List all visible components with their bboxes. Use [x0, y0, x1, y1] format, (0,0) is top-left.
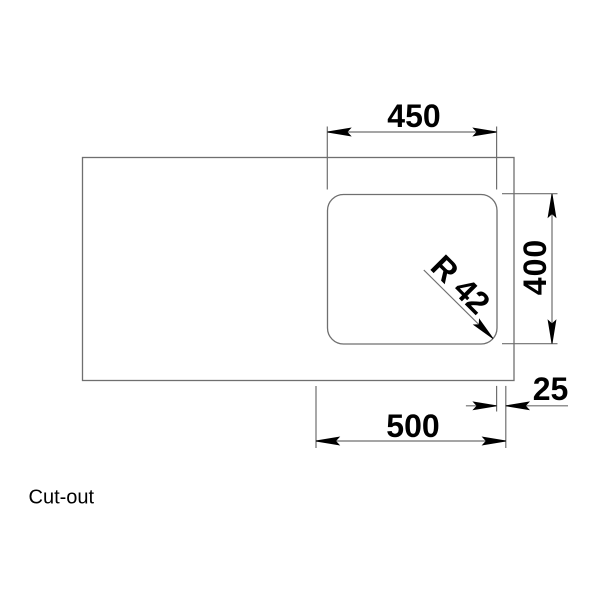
svg-text:25: 25: [533, 371, 569, 407]
svg-text:450: 450: [387, 98, 440, 134]
svg-text:500: 500: [386, 408, 439, 444]
svg-text:400: 400: [517, 239, 553, 295]
svg-text:Cut-out: Cut-out: [29, 487, 95, 509]
